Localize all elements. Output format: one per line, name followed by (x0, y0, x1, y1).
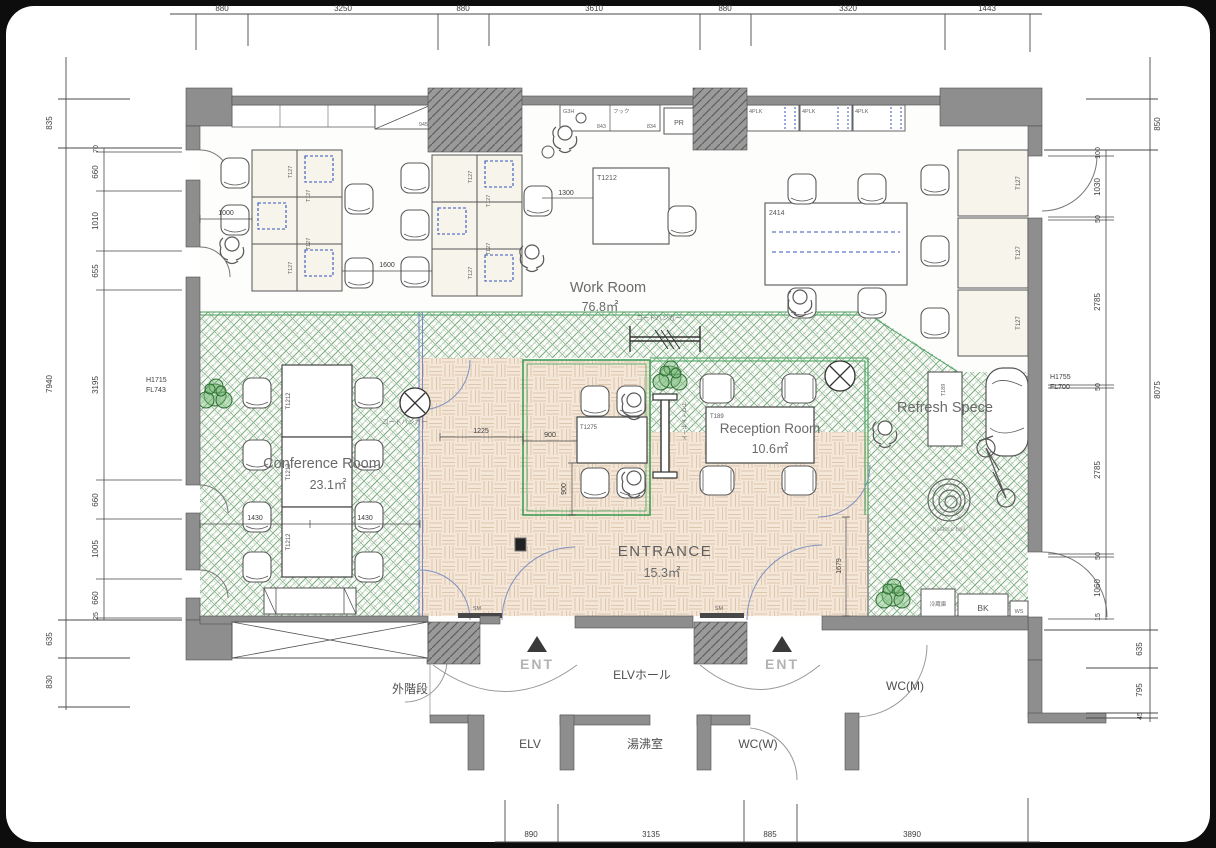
annotation-left-h: H1715 (146, 377, 167, 384)
dim-1679: 1679 (836, 558, 843, 574)
dim-label: 70 (93, 145, 100, 153)
dim-1225: 1225 (473, 428, 489, 435)
table-code: T189 (941, 384, 947, 397)
room-label-entrance: ENTRANCE (618, 543, 713, 560)
dim-834: 834 (647, 124, 656, 130)
coat-hanger-label: コートハンガー (636, 313, 682, 322)
floor-plan-page: 945 G3H 843 フック 834 PR 4PLK 4PLK 4PLK (0, 0, 1216, 848)
balance-ball-label: balance ball (933, 527, 965, 533)
desk-code: T127 (306, 190, 312, 203)
cabinet-945: 945 (375, 105, 431, 129)
dim-1300: 1300 (558, 190, 574, 197)
dim-label: 660 (91, 165, 100, 179)
wc-m-label: WC(M) (886, 679, 924, 693)
dim-label: 3320 (839, 4, 857, 13)
room-label-reception: Reception Room (720, 421, 821, 436)
dim-900: 900 (561, 483, 568, 495)
dim-label: 880 (718, 4, 732, 13)
ent-label: ENT (520, 656, 554, 672)
exterior-stair-label: 外階段 (392, 681, 428, 696)
locker-label: 4PLK (802, 109, 816, 115)
desk-code: T127 (288, 262, 294, 275)
annotation-right-h: H1755 (1050, 374, 1071, 381)
room-area-reception: 10.6㎡ (752, 442, 789, 456)
desk-code: T127 (1016, 316, 1022, 330)
room-area-conference: 23.1㎡ (310, 478, 347, 492)
desk-code: T127 (306, 238, 312, 251)
dim-1430: 1430 (357, 515, 373, 522)
annotation-right-fl: FL700 (1050, 384, 1070, 391)
dim-label: 3195 (91, 376, 100, 394)
dim-label: 835 (45, 116, 54, 130)
desk-code: T127 (1016, 176, 1022, 190)
dim-label: 3890 (903, 830, 921, 839)
dim-label: 3610 (585, 4, 603, 13)
dim-843: 843 (597, 124, 606, 130)
exterior-stair (232, 622, 428, 658)
dim-label: 635 (1135, 642, 1144, 656)
annotation-left-fl: FL743 (146, 387, 166, 394)
dim-945: 945 (419, 122, 428, 128)
dim-label: 25 (93, 612, 100, 620)
room-label-conference: Conference Room (263, 456, 381, 472)
ceiling-fan-symbol (825, 361, 855, 391)
table-code: T1275 (580, 425, 598, 431)
elv-label: ELV (519, 737, 541, 751)
dim-label: 50 (1095, 552, 1102, 560)
ceiling-fan-symbol (400, 388, 430, 418)
entrance-marker-box (515, 538, 526, 551)
room-label-refresh: Refresh Spece (897, 400, 993, 416)
dim-label: 2785 (1093, 293, 1102, 311)
table-code: T1212 (286, 392, 292, 410)
cabinet-row (232, 105, 375, 127)
dim-label: 3250 (334, 4, 352, 13)
room-area-work: 76.8㎡ (582, 300, 619, 314)
desk-column-right: T127 T127 T127 (921, 150, 1028, 356)
fridge-label: 冷蔵庫 (930, 600, 947, 608)
dim-label: 2785 (1093, 461, 1102, 479)
sm-label: SM (715, 606, 724, 612)
desk-code: T1212 (597, 175, 617, 182)
dim-1000: 1000 (218, 210, 234, 217)
desk-code: T127 (288, 166, 294, 179)
room-area-entrance: 15.3㎡ (644, 566, 681, 580)
dim-label: 660 (91, 591, 100, 605)
sm-label: SM (473, 606, 482, 612)
dim-label: 830 (45, 675, 54, 689)
floor-plan-drawing: 945 G3H 843 フック 834 PR 4PLK 4PLK 4PLK (0, 0, 1216, 848)
dim-label: 885 (763, 830, 777, 839)
dim-label: 15 (1095, 613, 1102, 621)
ent-label: ENT (765, 656, 799, 672)
bk-label: BK (977, 603, 989, 613)
locker-label: 4PLK (855, 109, 869, 115)
dim-label: 660 (91, 493, 100, 507)
dim-label: 1030 (1093, 178, 1102, 196)
cabinet-g3h-label: G3H (563, 109, 574, 115)
dim-label: 45 (1137, 712, 1144, 720)
table-code: T1212 (286, 533, 292, 551)
ws-label: WS (1015, 609, 1024, 615)
dim-label: 655 (91, 264, 100, 278)
dim-label: 100 (1095, 147, 1102, 159)
printer-box: PR (664, 108, 694, 134)
dim-1600: 1600 (379, 262, 395, 269)
wc-w-label: WC(W) (738, 737, 777, 751)
desk-code: T127 (1016, 246, 1022, 260)
cabinet-g3h-hook: G3H 843 フック 834 (560, 105, 660, 131)
dim-label: 3135 (642, 830, 660, 839)
dim-label: 1060 (1093, 579, 1102, 597)
door-threshold (700, 613, 744, 618)
dim-label: 890 (524, 830, 538, 839)
dim-label: 1443 (978, 4, 996, 13)
cabinet-hook-label: フック (613, 108, 630, 115)
hot-water-room-label: 湯沸室 (627, 736, 663, 751)
table-code: T189 (710, 414, 724, 420)
dim-1430: 1430 (247, 515, 263, 522)
dimension-labels-left-inner: 70 660 1010 655 3195 660 1005 660 25 (91, 145, 100, 620)
desk-code: T127 (468, 171, 474, 184)
dim-label: 795 (1135, 683, 1144, 697)
dim-label: 850 (1153, 117, 1162, 131)
elv-hall-label: ELVホール (613, 668, 671, 682)
locker-label: 4PLK (749, 109, 763, 115)
table-code: 2414 (769, 210, 785, 217)
dim-900: 900 (544, 432, 556, 439)
dim-label: 8075 (1153, 381, 1162, 399)
desk-code: T127 (486, 195, 492, 208)
bench (264, 588, 356, 614)
coat-hanger-label: コートハンガー (382, 417, 428, 426)
dim-label: 880 (456, 4, 470, 13)
whiteboard-label: ホワイトボード (680, 402, 688, 441)
dim-label: 50 (1095, 383, 1102, 391)
locker-4plk-group: 4PLK 4PLK 4PLK (747, 105, 905, 131)
dim-label: 1010 (91, 212, 100, 230)
dim-label: 880 (215, 4, 229, 13)
dim-label: 635 (45, 632, 54, 646)
dim-label: 1005 (91, 540, 100, 558)
printer-label: PR (674, 120, 684, 127)
room-label-work: Work Room (570, 280, 646, 296)
dim-label: 7940 (45, 375, 54, 393)
desk-code: T127 (468, 267, 474, 280)
desk-code: T127 (486, 243, 492, 256)
dim-label: 50 (1095, 215, 1102, 223)
